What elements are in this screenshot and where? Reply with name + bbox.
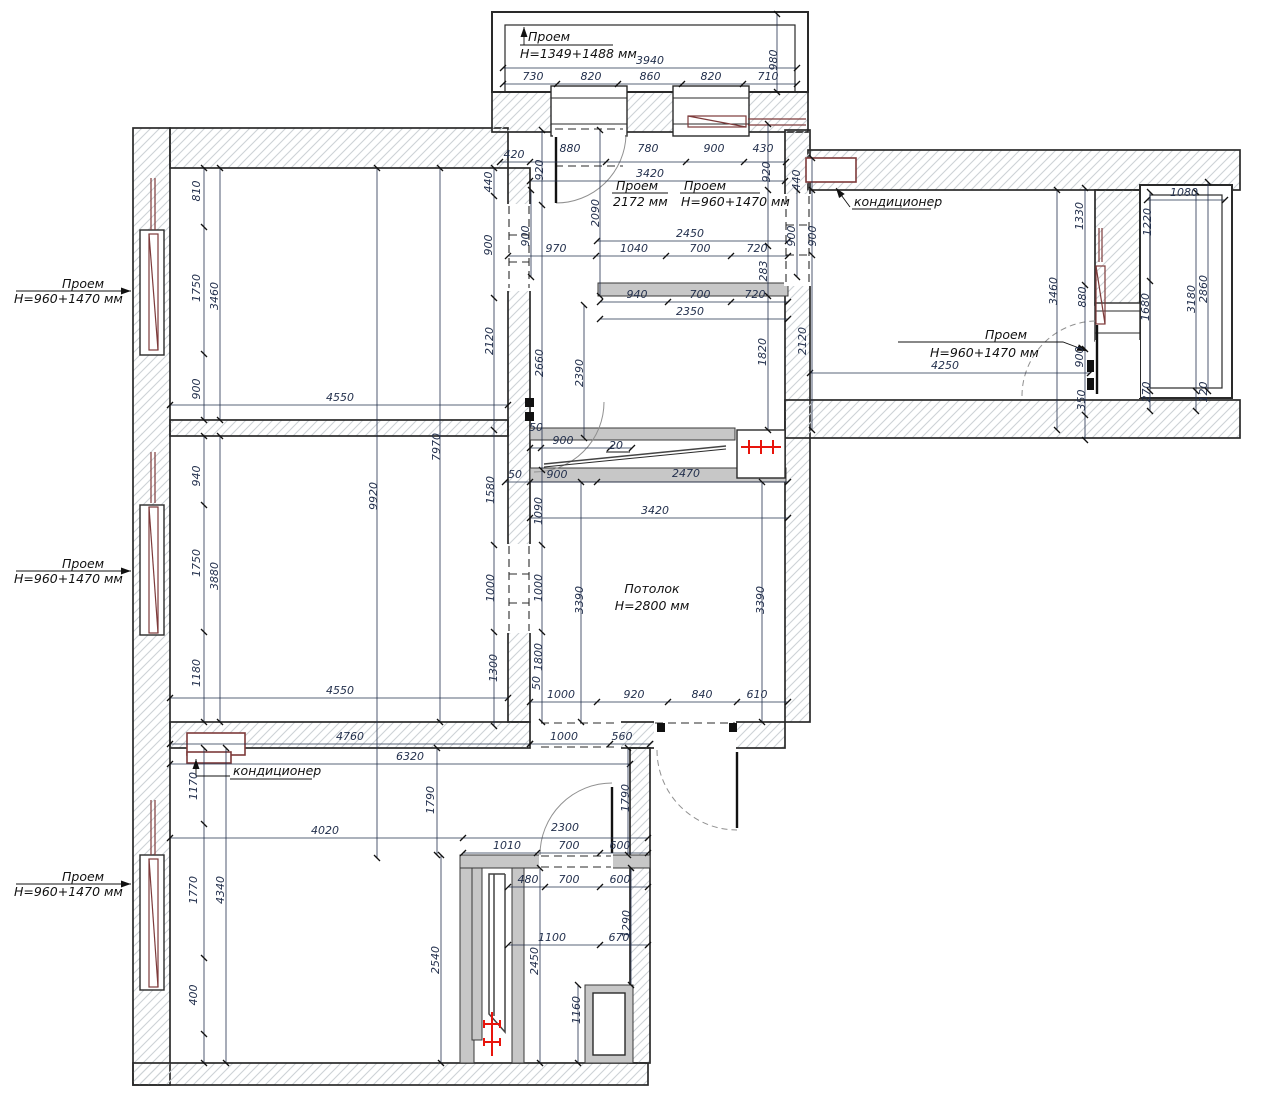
opening-size: H=960+1470 мм (14, 291, 123, 306)
dimension-label: 1790 (424, 786, 437, 814)
dimension-label: 2660 (533, 349, 546, 377)
opening-size: H=960+1470 мм (681, 194, 790, 209)
dimension-label: 4020 (311, 824, 339, 837)
opening-label-right: Проем H=960+1470 мм (930, 327, 1039, 360)
dimension-label: 900 (704, 142, 725, 155)
dimension-label: 940 (190, 466, 203, 487)
ac-unit-top-right (806, 158, 856, 182)
ceiling-title: Потолок (624, 581, 680, 596)
dimension-label: 1750 (190, 549, 203, 577)
wall-under-balcony (492, 92, 808, 132)
window-left-1 (140, 230, 164, 355)
dimension-label: 700 (690, 242, 711, 255)
dimension-label: 2450 (676, 227, 704, 240)
dimension-label: 600 (610, 873, 631, 886)
dimension-label: 1800 (532, 643, 545, 671)
dimension-label: 1580 (484, 476, 497, 504)
wall-top-left (170, 128, 508, 168)
dimension-label: 1010 (493, 839, 521, 852)
dimension-label: 4340 (214, 876, 227, 904)
dimension-label: 840 (692, 688, 713, 701)
dimension-label: 1820 (756, 338, 769, 366)
dimension-label: 2300 (551, 821, 579, 834)
opening-title: Проем (684, 178, 726, 193)
dimension-label: 1040 (620, 242, 648, 255)
opening-title: Проем (616, 178, 658, 193)
dimension-label: 970 (546, 242, 567, 255)
door-arc-balcony-right (1022, 321, 1097, 396)
wardrobe-rail (544, 446, 726, 464)
duct-shaft-inner (593, 993, 625, 1055)
dimension-label: 920 (760, 162, 773, 183)
dimension-label: 880 (1076, 287, 1089, 308)
dimension-label: 4550 (326, 391, 354, 404)
dimension-label: 3420 (641, 504, 669, 517)
door-arc-entrance (657, 750, 737, 830)
opening-title: Проем (62, 556, 104, 571)
dimension-label: 3460 (1047, 277, 1060, 305)
dimension-label: 900 (482, 235, 495, 256)
window-right (1095, 303, 1140, 341)
dimension-label: 920 (533, 160, 546, 181)
dimension-label: 610 (747, 688, 768, 701)
dimension-label: 2540 (429, 946, 442, 974)
dimension-label: 1770 (187, 876, 200, 904)
dimension-label: 440 (482, 172, 495, 193)
dimension-label: 670 (609, 931, 630, 944)
dimension-label: 3390 (754, 586, 767, 614)
dimension-label: 780 (638, 142, 659, 155)
dimension-labels: 3940730820860820710980420880780900430920… (187, 50, 1210, 1025)
dimension-label: 920 (624, 688, 645, 701)
wall-right-wing-bottom (785, 400, 1240, 438)
dimension-label: 3880 (208, 562, 221, 590)
dimension-label: 1160 (570, 996, 583, 1024)
window-left-3 (140, 855, 164, 990)
shower-wall (472, 868, 482, 1040)
opening-label-kitchen-2: Проем H=960+1470 мм (681, 178, 790, 209)
dimension-label: 700 (559, 873, 580, 886)
dimension-label: 3390 (573, 586, 586, 614)
dimension-label: 50 (530, 676, 543, 690)
leader-right-opening (898, 342, 1087, 351)
dimension-label: 1300 (487, 654, 500, 682)
opening-size: H=960+1470 мм (14, 884, 123, 899)
opening-size: 2172 мм (613, 194, 668, 209)
ac-unit-bottom-left-2 (187, 752, 231, 763)
dimension-label: 400 (187, 985, 200, 1006)
dimension-label: 1000 (484, 574, 497, 602)
dimension-label: 430 (753, 142, 774, 155)
dimension-label: 810 (190, 181, 203, 202)
opening-title: Проем (62, 869, 104, 884)
door-arc-bathroom (540, 783, 612, 855)
hall-partition (598, 283, 788, 296)
opening-title: Проем (985, 327, 1027, 342)
wall-bottom-exterior (133, 1063, 648, 1085)
bathroom-wall-inner (512, 868, 524, 1063)
opening-size: H=960+1470 мм (14, 571, 123, 586)
dimension-label: 1100 (538, 931, 566, 944)
dimension-label: 2350 (676, 305, 704, 318)
wall-between-rooms-1 (170, 420, 508, 436)
leader-ac-right (836, 188, 850, 207)
ceiling-label: Потолок H=2800 мм (615, 581, 690, 613)
dimension-label: 3420 (636, 167, 664, 180)
dimension-label: 1090 (532, 497, 545, 525)
wardrobe-top-wall (530, 428, 735, 440)
dimension-label: 2450 (528, 947, 541, 975)
opening-title: Проем (62, 276, 104, 291)
window-top-b (673, 86, 749, 136)
dimension-label: 1000 (532, 574, 545, 602)
dimension-label: 7970 (430, 433, 443, 461)
opening-label-kitchen: Проем 2172 мм (613, 178, 668, 209)
ac-label-top-right: кондиционер (854, 194, 942, 209)
dimension-label: 4250 (931, 359, 959, 372)
window-left-2 (140, 505, 164, 635)
dimension-label: 4550 (326, 684, 354, 697)
radiator-icon-bathroom (484, 1012, 500, 1056)
floor-plan-canvas: Проем H=1349+1488 мм Проем 2172 мм Проем… (0, 0, 1280, 1096)
ceiling-size: H=2800 мм (615, 598, 690, 613)
dimension-label: 700 (559, 839, 580, 852)
ac-label-bottom-left: кондиционер (233, 763, 321, 778)
shower-tray (489, 874, 505, 1032)
dimension-label: 6320 (396, 750, 424, 763)
balcony-top-outer (492, 12, 808, 92)
dimension-label: 1180 (190, 659, 203, 687)
dimension-label: 1000 (547, 688, 575, 701)
dimension-label: 720 (747, 242, 768, 255)
wall-entry-right (735, 722, 785, 748)
dimension-label: 1750 (190, 274, 203, 302)
dimension-label: 900 (190, 379, 203, 400)
dimension-label: 1330 (1073, 202, 1086, 230)
dimension-label: 3460 (208, 282, 221, 310)
dimension-label: 20 (609, 439, 623, 452)
dimension-label: 9920 (367, 482, 380, 510)
door-openings (507, 127, 1140, 869)
floor-plan-page: Проем H=1349+1488 мм Проем 2172 мм Проем… (0, 0, 1280, 1096)
balcony-right-outer (1140, 185, 1232, 398)
opening-size: H=960+1470 мм (930, 345, 1039, 360)
